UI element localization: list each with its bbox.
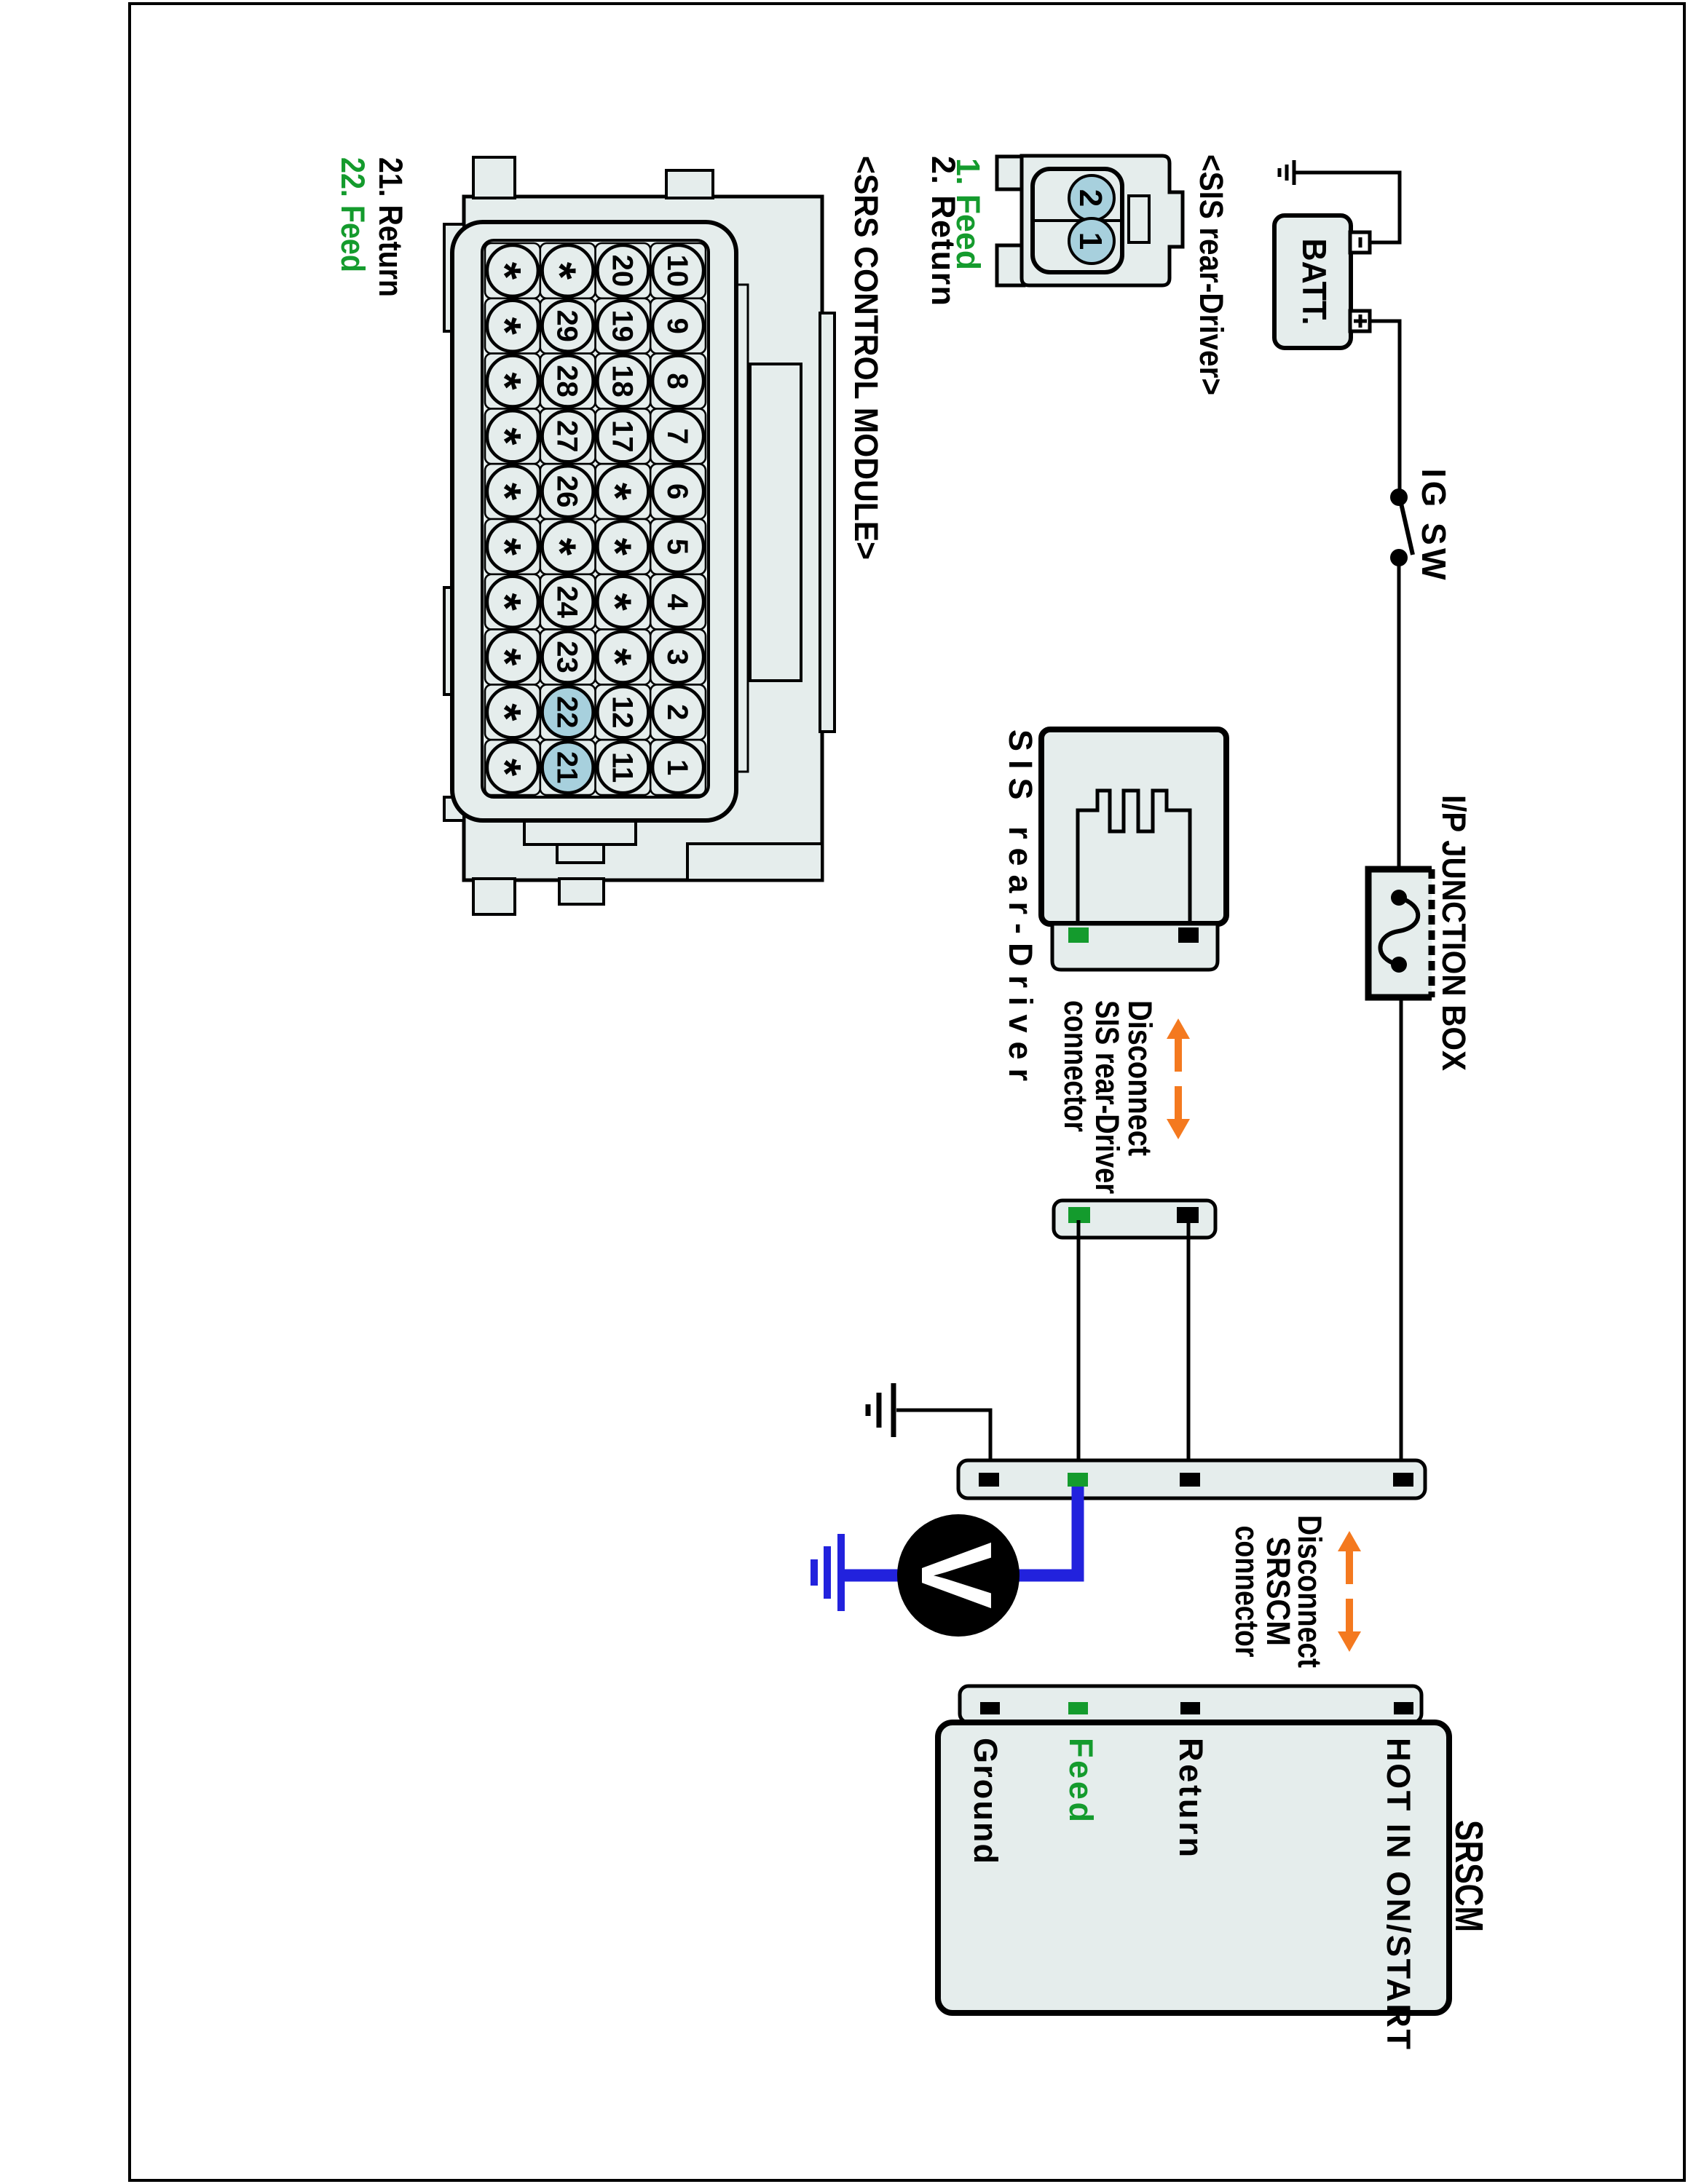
svg-text:17: 17 bbox=[606, 420, 638, 453]
svg-text:6: 6 bbox=[661, 483, 693, 499]
svg-text:21. Return: 21. Return bbox=[372, 157, 409, 297]
svg-text:<SIS rear-Driver>: <SIS rear-Driver> bbox=[1193, 154, 1230, 395]
svg-text:3: 3 bbox=[661, 649, 693, 665]
svg-text:23: 23 bbox=[551, 641, 583, 673]
svg-text:SRSCM: SRSCM bbox=[1447, 1820, 1491, 1932]
svg-text:connector: connector bbox=[1057, 1000, 1095, 1132]
svg-text:2. Return: 2. Return bbox=[925, 156, 962, 306]
svg-text:*: * bbox=[479, 427, 529, 446]
svg-text:21: 21 bbox=[551, 751, 583, 784]
svg-text:*: * bbox=[589, 648, 639, 666]
svg-text:29: 29 bbox=[551, 309, 583, 342]
svg-text:BATT.: BATT. bbox=[1295, 239, 1333, 325]
svg-text:*: * bbox=[479, 372, 529, 390]
svg-text:<SRS CONTROL MODULE>: <SRS CONTROL MODULE> bbox=[848, 156, 885, 560]
svg-text:*: * bbox=[479, 703, 529, 721]
svg-text:20: 20 bbox=[606, 255, 638, 288]
svg-text:1: 1 bbox=[661, 759, 693, 775]
svg-text:*: * bbox=[479, 483, 529, 501]
svg-text:10: 10 bbox=[661, 255, 693, 288]
svg-text:*: * bbox=[535, 538, 585, 556]
svg-text:SIS rear-Driver: SIS rear-Driver bbox=[1002, 729, 1039, 1081]
svg-text:5: 5 bbox=[661, 539, 693, 555]
svg-text:Disconnect: Disconnect bbox=[1121, 1000, 1159, 1156]
svg-text:*: * bbox=[479, 648, 529, 666]
svg-text:2: 2 bbox=[661, 704, 693, 720]
svg-text:*: * bbox=[479, 262, 529, 280]
svg-text:18: 18 bbox=[606, 365, 638, 397]
svg-text:27: 27 bbox=[551, 420, 583, 453]
svg-text:*: * bbox=[589, 593, 639, 612]
svg-text:*: * bbox=[589, 483, 639, 501]
svg-text:I/P JUNCTION BOX: I/P JUNCTION BOX bbox=[1435, 795, 1472, 1071]
svg-text:*: * bbox=[535, 262, 585, 280]
svg-text:2: 2 bbox=[1073, 189, 1108, 207]
svg-text:24: 24 bbox=[551, 585, 583, 618]
svg-text:*: * bbox=[589, 538, 639, 556]
svg-text:8: 8 bbox=[661, 373, 693, 389]
svg-text:19: 19 bbox=[606, 309, 638, 342]
svg-text:*: * bbox=[479, 593, 529, 612]
svg-text:1: 1 bbox=[1073, 232, 1108, 250]
svg-text:11: 11 bbox=[606, 752, 638, 783]
svg-text:28: 28 bbox=[551, 365, 583, 397]
svg-text:V: V bbox=[900, 1542, 1012, 1609]
svg-text:26: 26 bbox=[551, 475, 583, 508]
svg-text:Ground: Ground bbox=[967, 1738, 1004, 1864]
svg-text:22: 22 bbox=[551, 696, 583, 729]
svg-text:*: * bbox=[479, 759, 529, 777]
svg-text:IG SW: IG SW bbox=[1415, 469, 1453, 581]
svg-text:connector: connector bbox=[1228, 1526, 1266, 1658]
svg-text:4: 4 bbox=[661, 594, 693, 611]
svg-text:12: 12 bbox=[606, 696, 638, 729]
svg-text:*: * bbox=[479, 317, 529, 336]
svg-text:7: 7 bbox=[661, 428, 693, 444]
svg-text:22. Feed: 22. Feed bbox=[334, 157, 371, 272]
svg-text:9: 9 bbox=[661, 318, 693, 334]
svg-text:*: * bbox=[479, 538, 529, 556]
